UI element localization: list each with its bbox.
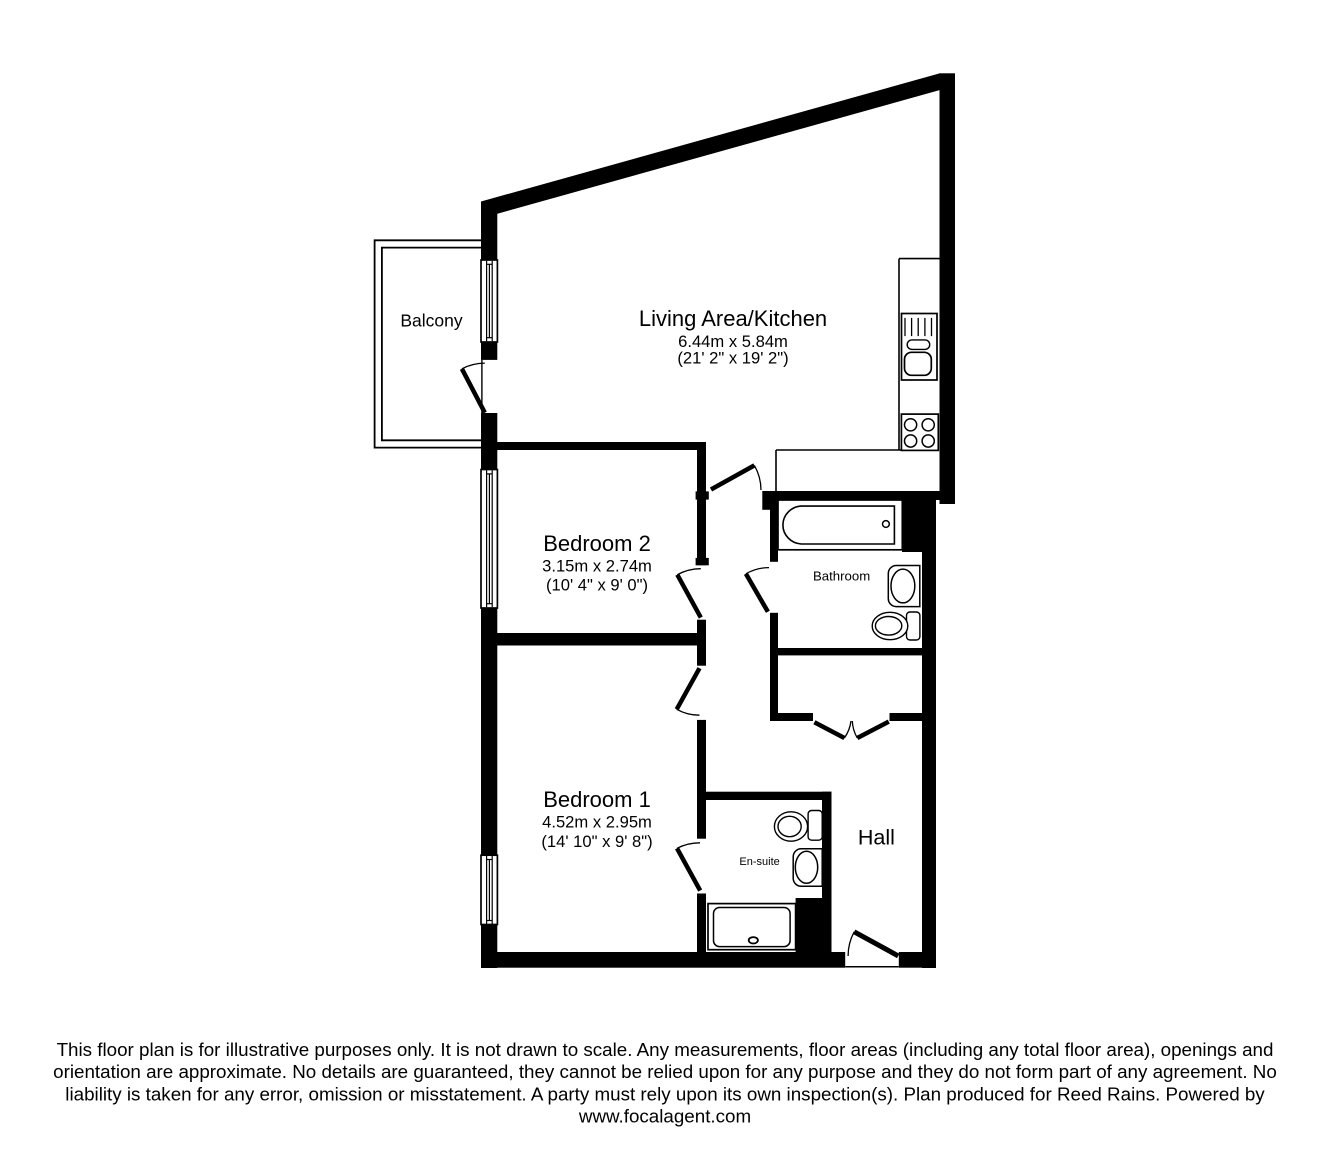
svg-text:Bathroom: Bathroom (813, 569, 870, 584)
svg-text:(10' 4" x 9' 0"): (10' 4" x 9' 0") (546, 576, 648, 595)
svg-text:Living Area/Kitchen: Living Area/Kitchen (639, 306, 827, 331)
svg-text:Balcony: Balcony (400, 311, 463, 331)
svg-text:Bedroom 2: Bedroom 2 (543, 531, 651, 556)
svg-text:4.52m x 2.95m: 4.52m x 2.95m (542, 812, 652, 831)
svg-text:Hall: Hall (858, 826, 895, 850)
svg-text:orientation are approximate. N: orientation are approximate. No details … (53, 1061, 1277, 1082)
svg-text:This floor plan is for illustr: This floor plan is for illustrative purp… (57, 1039, 1274, 1060)
svg-text:www.focalagent.com: www.focalagent.com (578, 1106, 751, 1127)
svg-text:3.15m x 2.74m: 3.15m x 2.74m (542, 557, 652, 576)
svg-text:Bedroom 1: Bedroom 1 (543, 787, 651, 812)
svg-text:(21' 2" x 19' 2"): (21' 2" x 19' 2") (677, 349, 788, 368)
svg-text:liability is taken for any err: liability is taken for any error, omissi… (65, 1083, 1265, 1104)
svg-text:(14' 10" x 9' 8"): (14' 10" x 9' 8") (541, 832, 652, 851)
svg-text:En-suite: En-suite (739, 856, 779, 868)
